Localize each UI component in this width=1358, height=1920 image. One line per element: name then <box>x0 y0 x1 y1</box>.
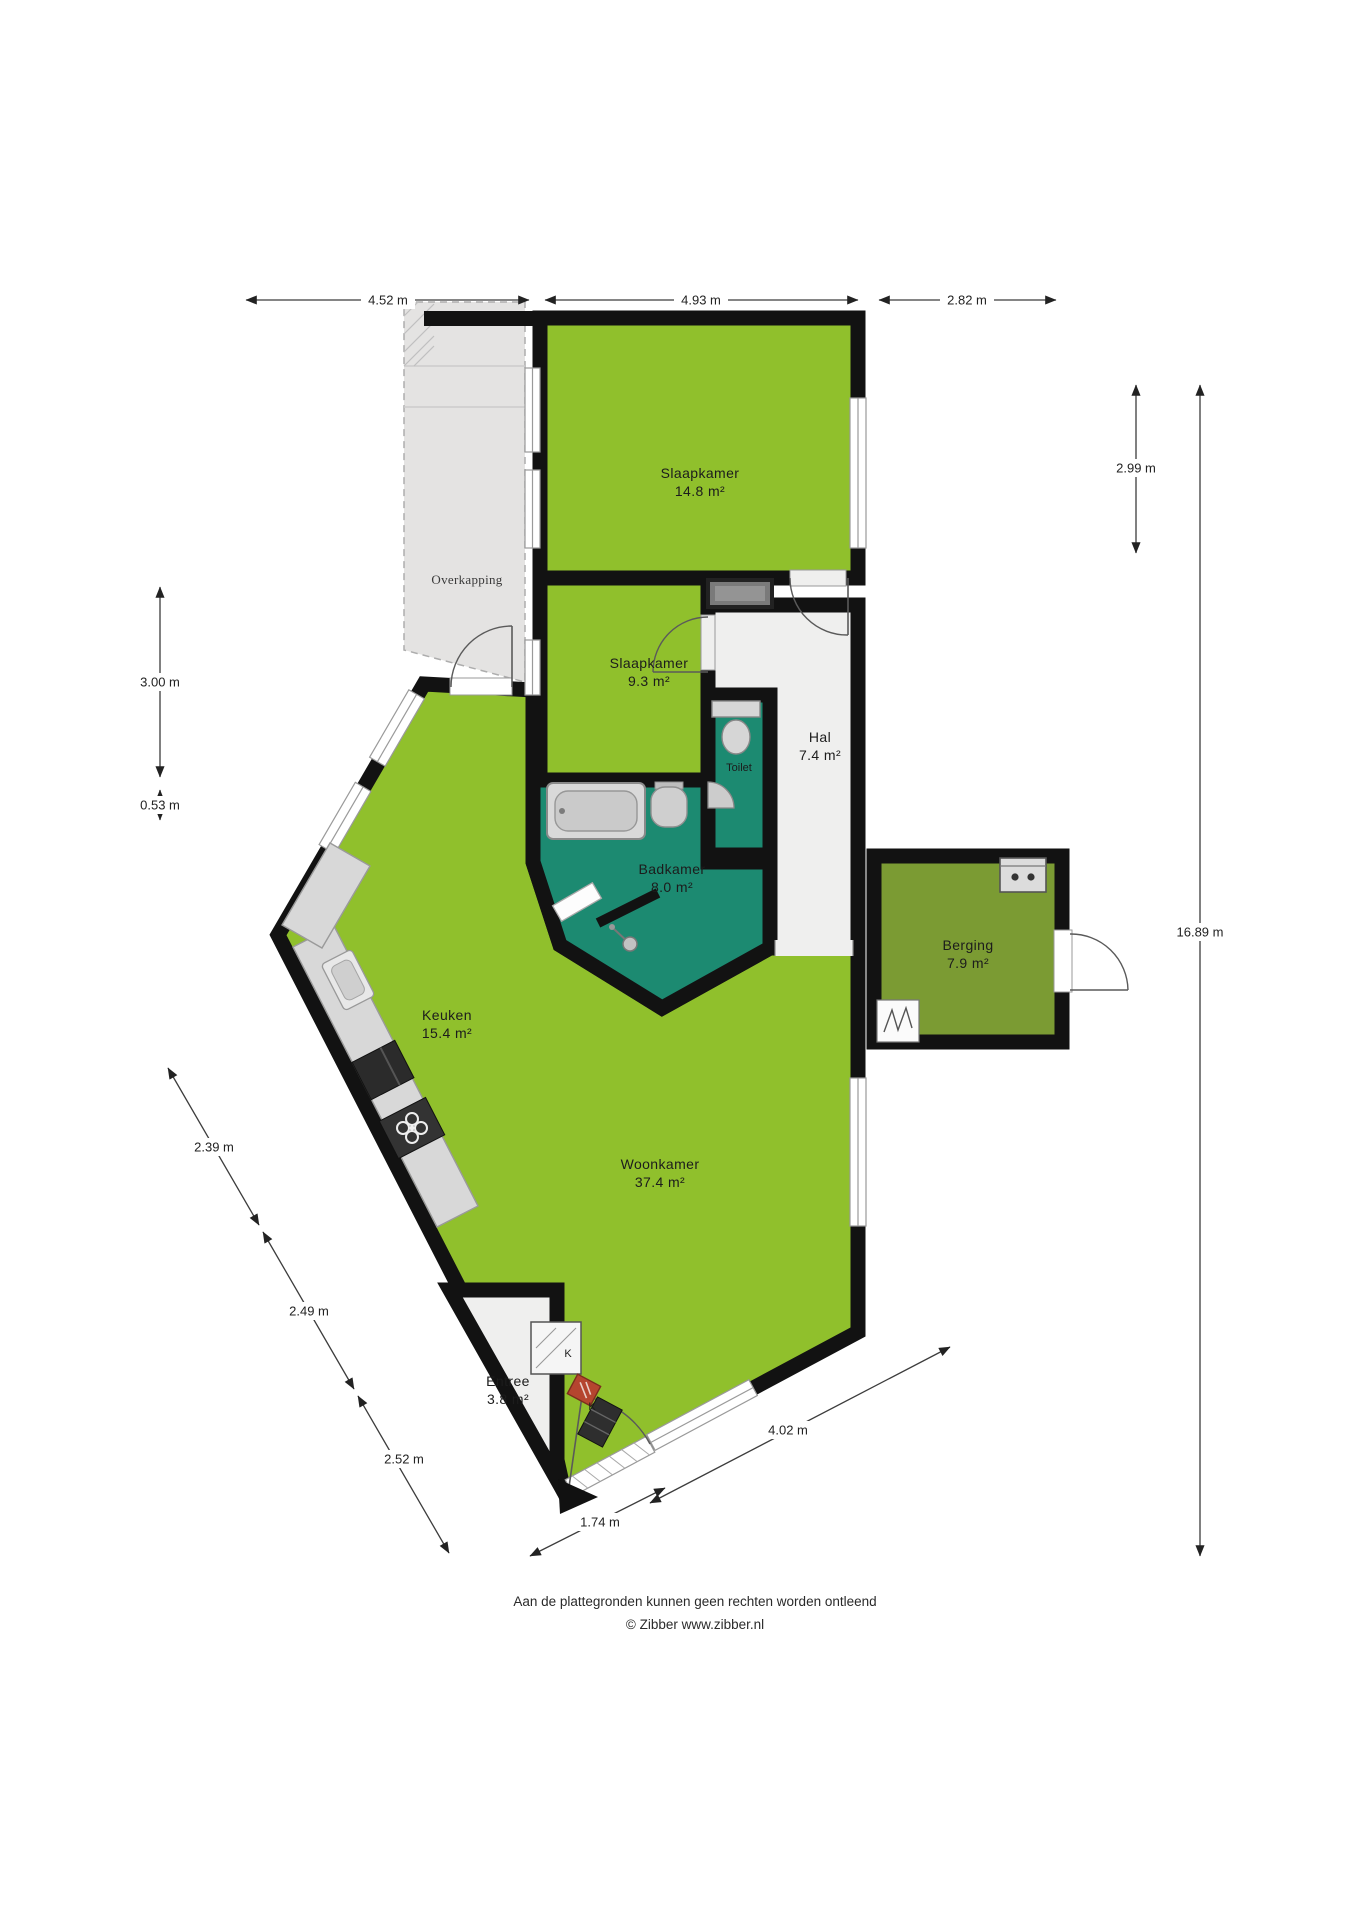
overkapping-shape <box>404 302 525 682</box>
label-entree-area: 3.8 m² <box>487 1391 529 1407</box>
dim-br-1: 4.02 m <box>768 1423 808 1438</box>
label-slaapkamer2-name: Slaapkamer <box>610 655 689 671</box>
overkapping-label: Overkapping <box>431 572 502 587</box>
window <box>525 640 540 695</box>
room-slaapkamer-1 <box>540 318 858 578</box>
label-woonkamer-area: 37.4 m² <box>635 1174 685 1190</box>
bathtub-icon <box>547 783 645 839</box>
dim-right-2: 16.89 m <box>1177 925 1224 940</box>
label-keuken-area: 15.4 m² <box>422 1025 472 1041</box>
dim-bl-1: 2.39 m <box>194 1140 234 1155</box>
label-woonkamer-name: Woonkamer <box>621 1156 700 1172</box>
label-hal-area: 7.4 m² <box>799 747 841 763</box>
label-keuken-name: Keuken <box>422 1007 472 1023</box>
closet-k1-icon <box>531 1322 581 1374</box>
room-slaapkamer-2 <box>540 578 708 780</box>
footer-credit: © Zibber www.zibber.nl <box>626 1617 764 1632</box>
dim-top-3: 2.82 m <box>947 293 987 308</box>
label-closet-k1: K <box>564 1348 572 1360</box>
dim-top-2: 4.93 m <box>681 293 721 308</box>
label-slaapkamer1-area: 14.8 m² <box>675 483 725 499</box>
sink-icon <box>651 782 687 827</box>
label-berging-name: Berging <box>942 937 993 953</box>
overkapping-door-gap <box>450 678 512 695</box>
berging-door-arc <box>1070 934 1128 990</box>
dim-left-2: 0.53 m <box>140 798 180 813</box>
closet-inner <box>715 586 765 601</box>
room-toilet <box>708 695 770 855</box>
label-badkamer-area: 8.0 m² <box>651 879 693 895</box>
bedroom2-door-gap <box>701 615 715 670</box>
label-badkamer-name: Badkamer <box>638 861 705 877</box>
floorplan-page: Overkapping <box>0 0 1358 1920</box>
dim-br-2: 1.74 m <box>580 1515 620 1530</box>
utility-box-icon <box>877 1000 919 1042</box>
dim-left-1: 3.00 m <box>140 675 180 690</box>
footer: Aan de plattegronden kunnen geen rechten… <box>513 1594 876 1632</box>
opening-floor <box>775 940 853 956</box>
bedroom1-door-gap <box>790 570 846 586</box>
closet-icon <box>708 580 772 607</box>
window <box>525 470 540 548</box>
label-entree-name: Entree <box>486 1373 530 1389</box>
dim-bl-2: 2.49 m <box>289 1304 329 1319</box>
footer-disclaimer: Aan de plattegronden kunnen geen rechten… <box>513 1594 876 1609</box>
label-hal-name: Hal <box>809 729 831 745</box>
opening-hal-woonkamer <box>775 940 853 956</box>
dim-right-1: 2.99 m <box>1116 461 1156 476</box>
overkapping-area: Overkapping <box>404 302 525 682</box>
wall-segment <box>424 311 544 326</box>
window <box>525 368 540 452</box>
label-closet-k2: K <box>588 1401 596 1413</box>
label-slaapkamer1-name: Slaapkamer <box>661 465 740 481</box>
label-slaapkamer2-area: 9.3 m² <box>628 673 670 689</box>
dim-bl-3: 2.52 m <box>384 1452 424 1467</box>
washing-machine-icon <box>1000 858 1046 892</box>
berging-door-gap <box>1054 930 1072 992</box>
floorplan-canvas: Overkapping <box>0 0 1358 1920</box>
dimension-line <box>358 1396 449 1553</box>
dim-top-1: 4.52 m <box>368 293 408 308</box>
label-toilet-name: Toilet <box>726 762 752 774</box>
window <box>850 398 866 548</box>
label-berging-area: 7.9 m² <box>947 955 989 971</box>
window <box>850 1078 866 1226</box>
